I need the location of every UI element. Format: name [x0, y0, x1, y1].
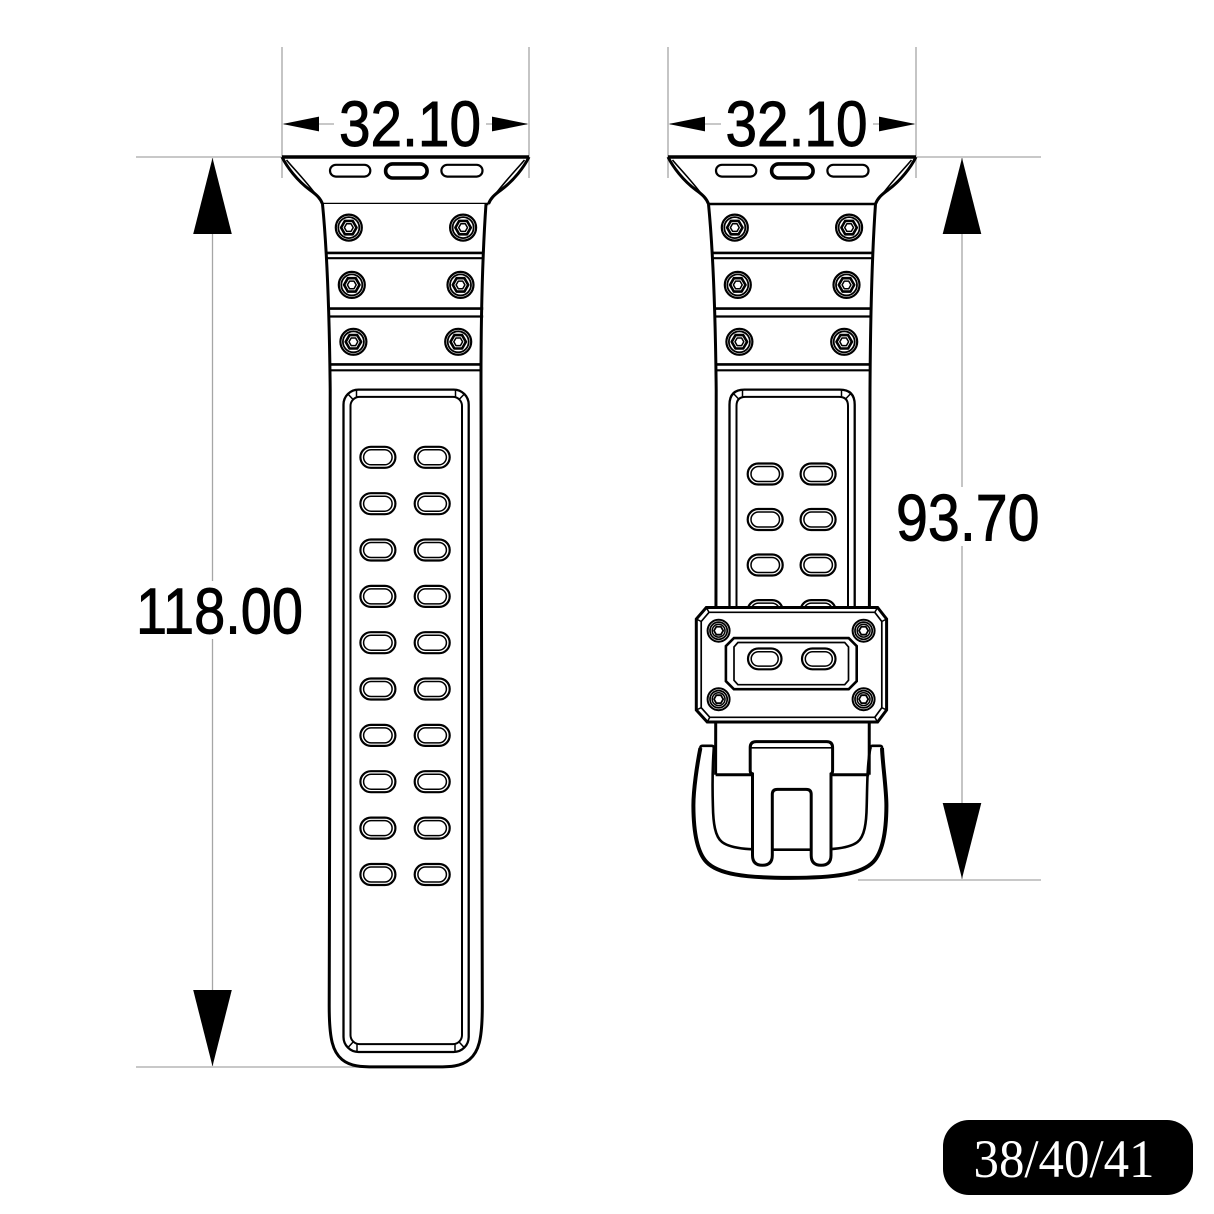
svg-text:93.70: 93.70	[896, 481, 1040, 555]
svg-text:32.10: 32.10	[339, 88, 481, 160]
svg-text:38/40/41: 38/40/41	[974, 1129, 1155, 1189]
svg-text:32.10: 32.10	[726, 88, 868, 160]
svg-text:118.00: 118.00	[136, 575, 303, 648]
